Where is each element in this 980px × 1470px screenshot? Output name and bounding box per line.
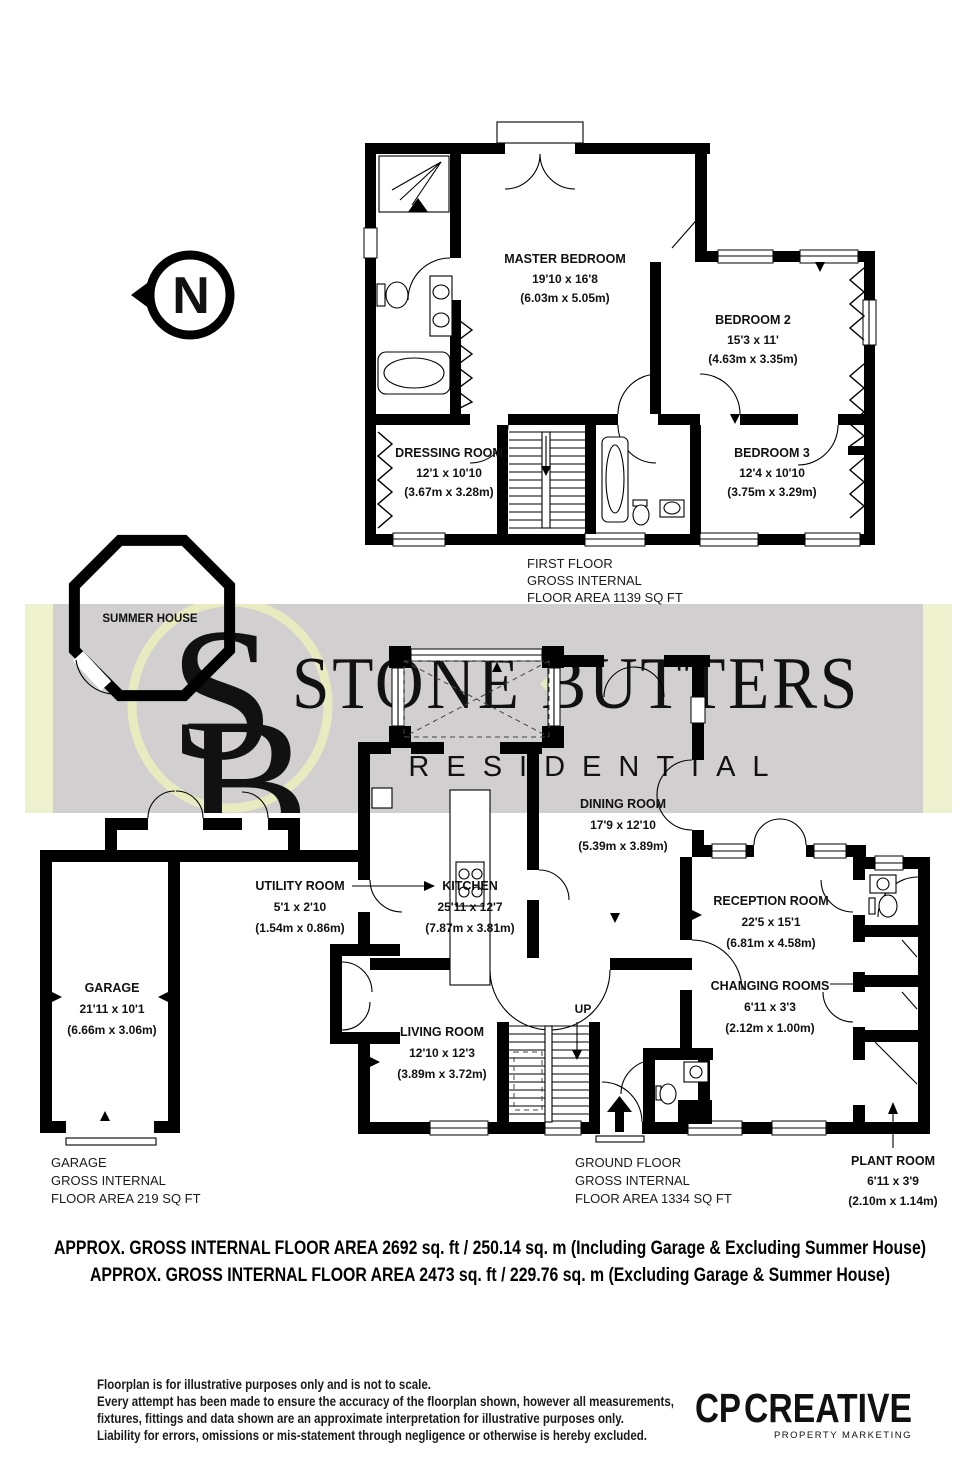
- bedroom-2-size-m: (4.63m x 3.35m): [708, 352, 797, 366]
- ground-floor-caption: GROUND FLOOR GROSS INTERNAL FLOOR AREA 1…: [575, 1155, 732, 1206]
- first-floor-caption-3: FLOOR AREA 1139 SQ FT: [527, 590, 683, 605]
- garage-caption-1: GARAGE: [51, 1155, 107, 1170]
- reception-room-size-ft: 22'5 x 15'1: [741, 915, 800, 929]
- dining-room-label: DINING ROOM: [580, 797, 666, 811]
- logo-creative: CREATIVE: [744, 1385, 912, 1431]
- ground-floor-caption-3: FLOOR AREA 1334 SQ FT: [575, 1191, 732, 1206]
- disclaimer-line-3: fixtures, fittings and data shown are an…: [97, 1411, 624, 1426]
- garage-plan: GARAGE 21'11 x 10'1 (6.66m x 3.06m) GARA…: [40, 791, 358, 1206]
- dining-room-size-m: (5.39m x 3.89m): [578, 839, 667, 853]
- bedroom-2-label: BEDROOM 2: [715, 313, 791, 327]
- ground-floor-caption-2: GROSS INTERNAL: [575, 1173, 690, 1188]
- disclaimer-line-2: Every attempt has been made to ensure th…: [97, 1394, 674, 1409]
- up-label: UP: [575, 1002, 592, 1016]
- dressing-room-size-m: (3.67m x 3.28m): [404, 485, 493, 499]
- north-letter: N: [172, 267, 210, 325]
- first-floor-caption-1: FIRST FLOOR: [527, 556, 613, 571]
- bedroom-3-label: BEDROOM 3: [734, 446, 810, 460]
- garage-label: GARAGE: [85, 981, 140, 995]
- changing-rooms-label: CHANGING ROOMS: [711, 979, 830, 993]
- garage-walls: [40, 791, 358, 1145]
- reception-room-label: RECEPTION ROOM: [713, 894, 828, 908]
- changing-rooms-size-ft: 6'11 x 3'3: [744, 1000, 796, 1014]
- changing-rooms-size-m: (2.12m x 1.00m): [725, 1021, 814, 1035]
- living-room-size-ft: 12'10 x 12'3: [409, 1046, 475, 1060]
- total-area-line-1: APPROX. GROSS INTERNAL FLOOR AREA 2692 s…: [54, 1238, 926, 1259]
- first-floor-stairs: [509, 432, 585, 528]
- dressing-room-label: DRESSING ROOM: [395, 446, 503, 460]
- brand-subtitle: RESIDENTIAL: [408, 751, 785, 783]
- plant-room-size-m: (2.10m x 1.14m): [848, 1194, 937, 1208]
- logo-tagline: PROPERTY MARKETING: [774, 1430, 912, 1441]
- band-yellow-right: [923, 604, 952, 813]
- disclaimer: Floorplan is for illustrative purposes o…: [97, 1377, 674, 1443]
- kitchen-size-ft: 25'11 x 12'7: [437, 900, 502, 914]
- north-arrow-icon: [131, 281, 150, 309]
- dining-room-size-ft: 17'9 x 12'10: [590, 818, 656, 832]
- first-floor-caption: FIRST FLOOR GROSS INTERNAL FLOOR AREA 11…: [527, 556, 683, 605]
- first-floor-caption-2: GROSS INTERNAL: [527, 573, 642, 588]
- bedroom-2-size-ft: 15'3 x 11': [727, 333, 779, 347]
- living-room-label: LIVING ROOM: [400, 1025, 484, 1039]
- ground-floor-caption-1: GROUND FLOOR: [575, 1155, 681, 1170]
- master-bedroom-size-m: (6.03m x 5.05m): [520, 291, 609, 305]
- disclaimer-line-4: Liability for errors, omissions or mis-s…: [97, 1428, 647, 1443]
- logo-cp: CP: [695, 1385, 741, 1431]
- bedroom-3-size-ft: 12'4 x 10'10: [739, 466, 805, 480]
- utility-room-label: UTILITY ROOM: [255, 879, 344, 893]
- cp-creative-logo: CP CREATIVE PROPERTY MARKETING: [695, 1385, 912, 1441]
- entrance-arrow-icon: [607, 1096, 632, 1132]
- total-areas: APPROX. GROSS INTERNAL FLOOR AREA 2692 s…: [54, 1238, 926, 1286]
- ground-floor-stairs: [509, 1022, 589, 1122]
- floorplan-page: S B STONE BUTTERS RESIDENTIAL N: [0, 0, 980, 1470]
- kitchen-label: KITCHEN: [442, 879, 498, 893]
- garage-caption-3: FLOOR AREA 219 SQ FT: [51, 1191, 201, 1206]
- garage-size-m: (6.66m x 3.06m): [67, 1023, 156, 1037]
- bedroom-3-size-m: (3.75m x 3.29m): [727, 485, 816, 499]
- reception-room-size-m: (6.81m x 4.58m): [726, 936, 815, 950]
- master-bedroom-size-ft: 19'10 x 16'8: [532, 272, 598, 286]
- plant-room-label: PLANT ROOM: [851, 1154, 935, 1168]
- kitchen-size-m: (7.87m x 3.81m): [425, 921, 514, 935]
- band-yellow-left: [25, 604, 53, 813]
- utility-room-size-m: (1.54m x 0.86m): [255, 921, 344, 935]
- dressing-room-size-ft: 12'1 x 10'10: [416, 466, 482, 480]
- first-floor-plan: MASTER BEDROOM 19'10 x 16'8 (6.03m x 5.0…: [364, 122, 876, 605]
- summer-house-label: SUMMER HOUSE: [102, 613, 198, 625]
- plant-room-size-ft: 6'11 x 3'9: [867, 1174, 919, 1188]
- living-room-size-m: (3.89m x 3.72m): [397, 1067, 486, 1081]
- utility-room-size-ft: 5'1 x 2'10: [274, 900, 327, 914]
- north-compass: N: [131, 255, 230, 335]
- garage-room-label: GARAGE 21'11 x 10'1 (6.66m x 3.06m): [67, 981, 156, 1037]
- garage-caption-2: GROSS INTERNAL: [51, 1173, 166, 1188]
- disclaimer-line-1: Floorplan is for illustrative purposes o…: [97, 1377, 431, 1392]
- garage-size-ft: 21'11 x 10'1: [79, 1002, 144, 1016]
- total-area-line-2: APPROX. GROSS INTERNAL FLOOR AREA 2473 s…: [90, 1265, 890, 1286]
- master-bedroom-label: MASTER BEDROOM: [504, 252, 626, 266]
- garage-caption: GARAGE GROSS INTERNAL FLOOR AREA 219 SQ …: [51, 1155, 201, 1206]
